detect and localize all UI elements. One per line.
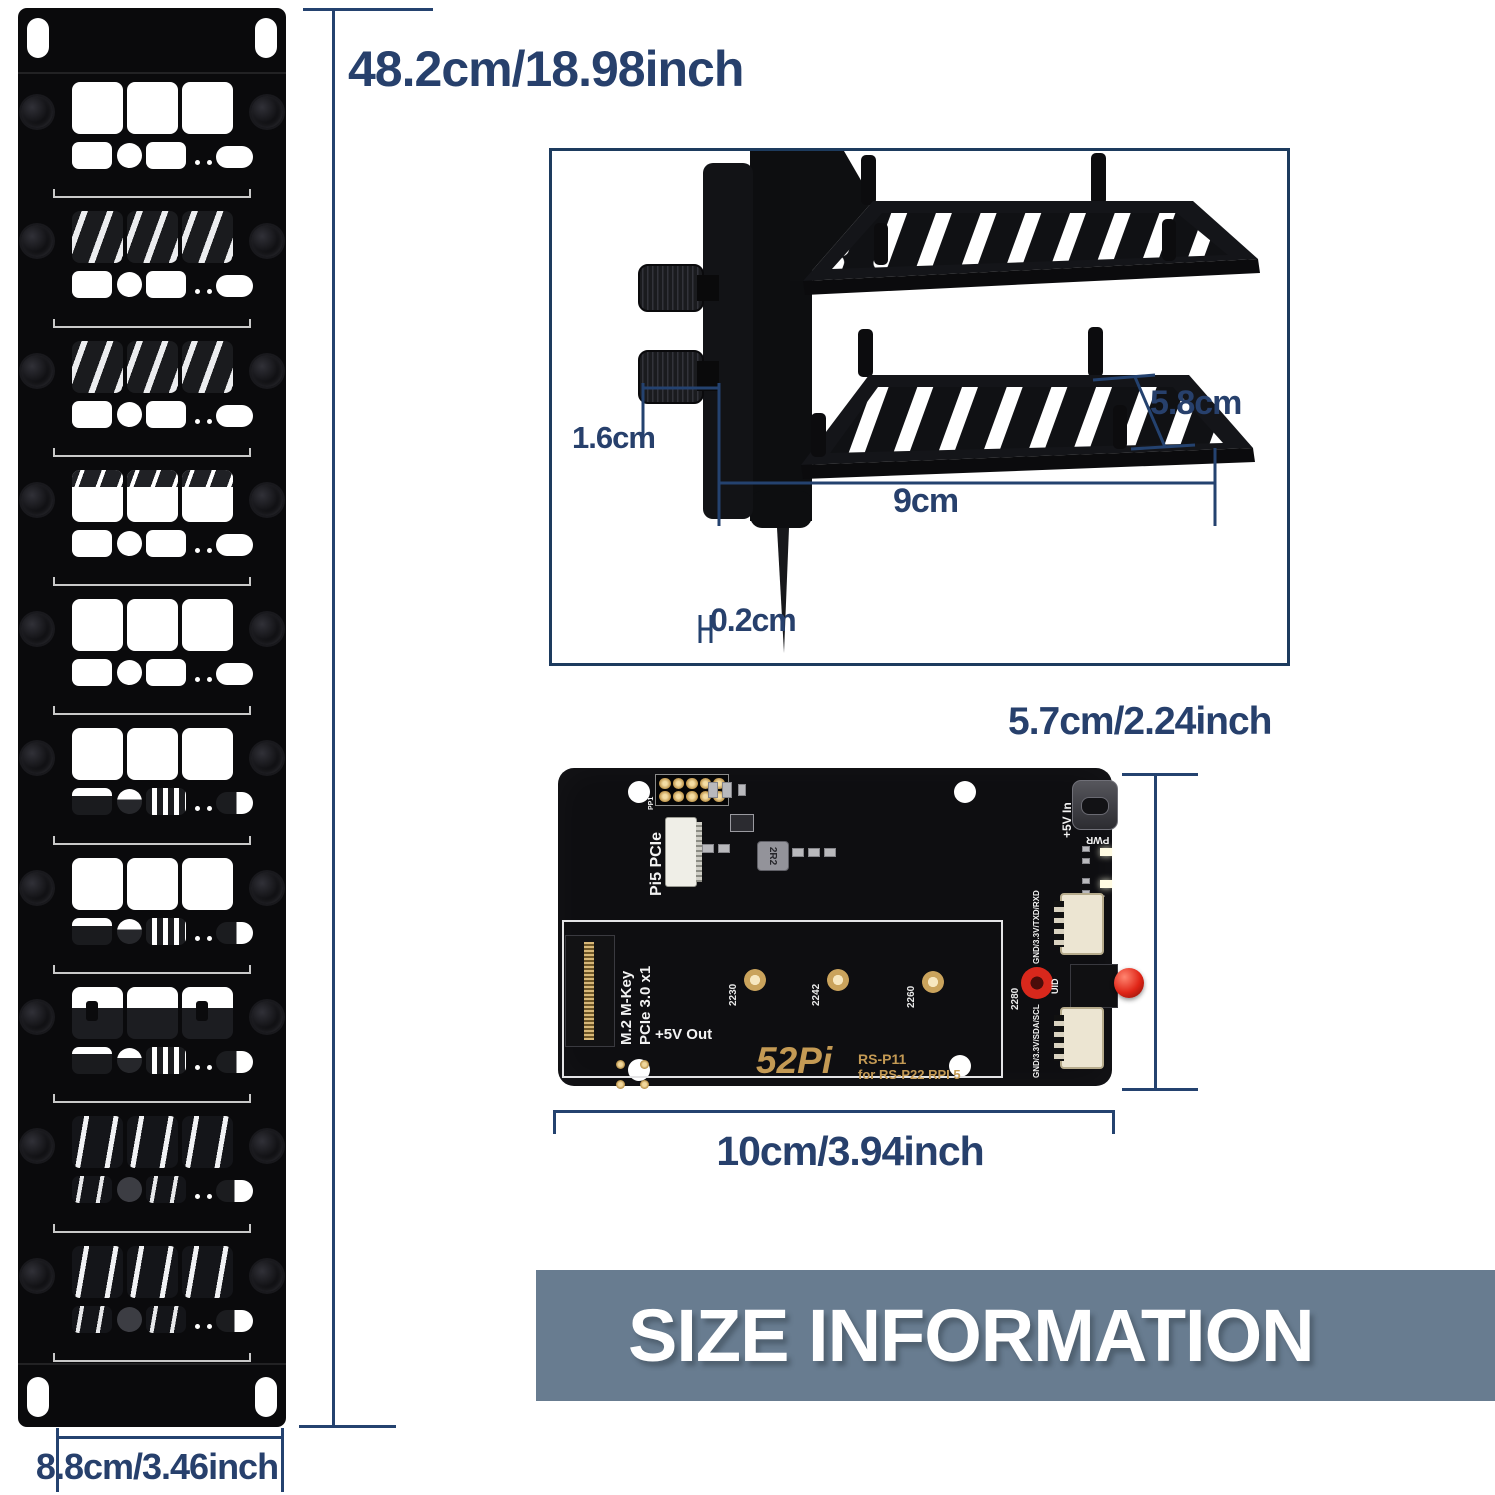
- smd-component: [722, 782, 732, 798]
- rack-screw-icon: [21, 1001, 53, 1033]
- bay-cutout-large: [127, 728, 178, 780]
- m2-slot-connector: [565, 935, 615, 1047]
- jst-connector-uart: [1060, 893, 1104, 955]
- model-label: RS-P11: [858, 1051, 906, 1067]
- bay-cutout-large: [182, 858, 233, 910]
- bay-cutout-dot: [195, 160, 200, 165]
- bay-cutout-pill: [216, 534, 253, 556]
- bay-cutout-pill: [216, 792, 253, 814]
- bay-cutout-pill: [216, 405, 253, 427]
- uid-label: UID: [1050, 979, 1060, 995]
- rack-screw-icon: [21, 742, 53, 774]
- rack-screw-icon: [21, 1130, 53, 1162]
- pcb-photo: PP1 Pi5 PCIe 2R2 M.2 M-Key PCIe 3.0 x1 2…: [558, 768, 1112, 1086]
- bay-cutout-small: [72, 918, 112, 945]
- bay-cutout-pill: [216, 146, 253, 168]
- bay-cutout-small: [146, 918, 186, 945]
- bay-cutout-large: [127, 211, 178, 263]
- solder-pad: [616, 1080, 625, 1089]
- bay-cutout-dot: [207, 1194, 212, 1199]
- bay-cutout-small: [72, 401, 112, 428]
- bay-cutout-small: [72, 1306, 112, 1333]
- pi5-pcie-label: Pi5 PCIe: [648, 832, 666, 896]
- bay-cutout-large: [72, 599, 123, 651]
- bay-cutout-large: [72, 858, 123, 910]
- bay-cutout-large: [72, 728, 123, 780]
- bay-cutout-dot: [207, 548, 212, 553]
- rack-screw-icon: [21, 96, 53, 128]
- bay-cutout-round: [117, 660, 142, 685]
- bay-cutout-large: [127, 1116, 178, 1168]
- pcb-hole: [628, 781, 650, 803]
- bay-cutout-small: [146, 659, 186, 686]
- rack-panel-photo: [18, 8, 286, 1427]
- standoff-label: 2242: [811, 984, 822, 1006]
- bay-cutout-large: [182, 1116, 233, 1168]
- smd-component: [824, 848, 836, 857]
- rack-screw-icon: [251, 484, 283, 516]
- bay-cutout-round: [117, 402, 142, 427]
- dim-cap: [1122, 1088, 1198, 1091]
- bay-cutout-dot: [207, 1065, 212, 1070]
- size-information-page: 48.2cm/18.98inch 8.8cm/3.46inch: [0, 0, 1495, 1495]
- rack-bay: [18, 201, 286, 330]
- bay-cutout-round: [117, 143, 142, 168]
- bracket-plate-foot: [750, 491, 812, 528]
- bay-cutout-large: [127, 470, 178, 522]
- m2-slot-label: M.2 M-Key PCIe 3.0 x1: [618, 966, 656, 1045]
- bay-cutout-pill: [216, 1180, 253, 1202]
- rack-screw-icon: [21, 1260, 53, 1292]
- bay-cutout-dot: [195, 677, 200, 682]
- bay-cutout-dot: [207, 936, 212, 941]
- bay-cutout-small: [146, 271, 186, 298]
- rack-bay: [18, 977, 286, 1106]
- rack-bay: [18, 72, 286, 201]
- smd-component: [1082, 846, 1090, 852]
- rack-screw-icon: [21, 355, 53, 387]
- dim-tick: [553, 1110, 556, 1134]
- smd-component: [708, 782, 718, 798]
- bay-cutout-small: [146, 401, 186, 428]
- smd-component: [738, 784, 746, 796]
- bay-cutout-dot: [195, 1194, 200, 1199]
- bay-seam: [53, 965, 251, 974]
- bay-cutout-large: [182, 728, 233, 780]
- pp1-label: PP1: [648, 797, 655, 810]
- rack-flange-top: [18, 8, 286, 74]
- rack-screw-icon: [21, 225, 53, 257]
- standoff-2242: [827, 969, 849, 991]
- bay-cutout-small: [146, 788, 186, 815]
- bay-cutout-small: [72, 530, 112, 557]
- bay-cutout-large: [127, 82, 178, 134]
- rack-screw-icon: [251, 872, 283, 904]
- bracket-width-label: 9cm: [893, 482, 958, 521]
- rack-screw-icon: [251, 742, 283, 774]
- bay-cutout-dot: [207, 419, 212, 424]
- smd-component: [1082, 878, 1090, 884]
- bay-cutout-small: [146, 1047, 186, 1074]
- red-power-button: [1114, 968, 1144, 998]
- bay-cutout-small: [146, 1176, 186, 1203]
- rack-screw-icon: [251, 613, 283, 645]
- rack-screw-icon: [21, 613, 53, 645]
- standoff-2280: [1021, 967, 1053, 999]
- standoff-2260: [922, 971, 944, 993]
- pwr-led: [1100, 848, 1112, 856]
- bracket-offset-label: 1.6cm: [572, 420, 655, 456]
- mount-hole: [255, 18, 277, 58]
- bay-cutout-round: [117, 919, 142, 944]
- panel-width-label: 8.8cm/3.46inch: [28, 1446, 286, 1488]
- power-in-label: +5V In: [1060, 802, 1074, 838]
- bay-cutout-large: [72, 82, 123, 134]
- bay-cutout-large: [182, 987, 233, 1039]
- bay-seam: [53, 319, 251, 328]
- bay-seam: [53, 1224, 251, 1233]
- bay-cutout-large: [72, 211, 123, 263]
- rack-bay: [18, 848, 286, 977]
- bay-cutout-pill: [216, 1051, 253, 1073]
- bay-cutout-large: [72, 1116, 123, 1168]
- bay-cutout-large: [182, 211, 233, 263]
- bay-cutout-large: [182, 82, 233, 134]
- bay-cutout-dot: [195, 1065, 200, 1070]
- solder-pad: [640, 1080, 649, 1089]
- bay-seam: [53, 1353, 251, 1362]
- bay-cutout-dot: [195, 806, 200, 811]
- bay-cutout-large: [127, 987, 178, 1039]
- standoff-label: 2260: [906, 986, 917, 1008]
- rack-flange-bottom: [18, 1363, 286, 1427]
- bay-cutout-dot: [195, 419, 200, 424]
- jst-connector-i2c: [1060, 1007, 1104, 1069]
- usb-c-port: [1072, 780, 1118, 830]
- uart-header-label: GND/3.3V/TXD/RXD: [1032, 890, 1041, 964]
- bay-seam: [53, 577, 251, 586]
- rack-screw-icon: [251, 1001, 283, 1033]
- power-out-label: +5V Out: [655, 1026, 712, 1043]
- button-switch-body: [1070, 964, 1118, 1008]
- rack-bay: [18, 1106, 286, 1235]
- 52pi-logo: 52Pi: [756, 1040, 832, 1082]
- smd-component: [702, 844, 714, 853]
- rack-bay: [18, 460, 286, 589]
- smd-component: [1082, 858, 1090, 864]
- standoff-2230: [744, 969, 766, 991]
- bay-cutout-small: [72, 271, 112, 298]
- rack-bay: [18, 718, 286, 847]
- bay-cutout-round: [117, 789, 142, 814]
- pwr-led-label: PWR: [1086, 834, 1109, 845]
- bay-cutout-round: [117, 1048, 142, 1073]
- ic-chip: [730, 814, 754, 832]
- bay-seam: [53, 836, 251, 845]
- bay-seam: [53, 1094, 251, 1103]
- bay-cutout-large: [127, 1246, 178, 1298]
- bay-cutout-large: [72, 987, 123, 1039]
- bay-cutout-large: [72, 470, 123, 522]
- rack-screw-icon: [251, 355, 283, 387]
- bay-cutout-round: [117, 1177, 142, 1202]
- dim-line-panel-height: [332, 8, 335, 1428]
- bay-seam: [53, 706, 251, 715]
- i2c-header-label: GND/3.3V/SDA/SCL: [1032, 1004, 1041, 1078]
- smd-component: [718, 844, 730, 853]
- bracket-depth-label: 5.8cm: [1150, 384, 1241, 423]
- bay-cutout-dot: [207, 1324, 212, 1329]
- standoff-label: 2230: [728, 984, 739, 1006]
- bay-cutout-small: [72, 659, 112, 686]
- bay-cutout-pill: [216, 663, 253, 685]
- pcb-height-label: 5.7cm/2.24inch: [1008, 700, 1272, 744]
- bay-cutout-dot: [207, 160, 212, 165]
- bay-cutout-dot: [195, 936, 200, 941]
- standoff-label: 2280: [1010, 988, 1021, 1010]
- bay-cutout-large: [182, 599, 233, 651]
- bay-seam: [53, 189, 251, 198]
- dim-tick: [1112, 1110, 1115, 1134]
- bay-cutout-small: [146, 530, 186, 557]
- bay-cutout-large: [182, 341, 233, 393]
- dim-line-pcb-width: [553, 1110, 1115, 1113]
- panel-height-label: 48.2cm/18.98inch: [348, 40, 743, 98]
- bay-cutout-large: [72, 341, 123, 393]
- smd-component: [808, 848, 820, 857]
- rack-screw-icon: [21, 872, 53, 904]
- bay-cutout-round: [117, 272, 142, 297]
- bay-cutout-small: [146, 142, 186, 169]
- bay-cutout-large: [127, 599, 178, 651]
- bay-cutout-large: [182, 470, 233, 522]
- pcb-hole: [954, 781, 976, 803]
- act-led: [1100, 880, 1112, 888]
- bay-cutout-pill: [216, 275, 253, 297]
- dim-line-pcb-height: [1154, 773, 1157, 1091]
- bay-cutout-large: [127, 858, 178, 910]
- ffc-connector: [665, 817, 697, 887]
- bay-cutout-dot: [195, 1324, 200, 1329]
- rack-screw-icon: [251, 1260, 283, 1292]
- bracket-thickness-label: 0.2cm: [710, 602, 796, 639]
- model-sub-label: for RS-P22 RPI 5: [858, 1067, 961, 1082]
- bay-cutout-small: [72, 142, 112, 169]
- rack-bay: [18, 589, 286, 718]
- banner-title: SIZE INFORMATION: [628, 1293, 1314, 1378]
- bay-cutout-dot: [207, 677, 212, 682]
- bay-cutout-small: [72, 788, 112, 815]
- bay-cutout-dot: [195, 548, 200, 553]
- rack-bay: [18, 1236, 286, 1365]
- bay-cutout-small: [72, 1047, 112, 1074]
- bay-cutout-large: [182, 1246, 233, 1298]
- bracket-flange: [703, 163, 753, 519]
- size-information-banner: SIZE INFORMATION: [536, 1270, 1495, 1401]
- bay-cutout-small: [72, 1176, 112, 1203]
- bracket-top-shelf: [803, 153, 1260, 295]
- bay-cutout-dot: [195, 289, 200, 294]
- bay-cutout-small: [146, 1306, 186, 1333]
- dim-cap: [1122, 773, 1198, 776]
- bay-cutout-dot: [207, 806, 212, 811]
- solder-pad: [640, 1060, 649, 1069]
- dim-cap-top: [303, 8, 433, 11]
- rack-bay: [18, 331, 286, 460]
- inductor-2r2: 2R2: [757, 841, 789, 871]
- dim-line-panel-width: [56, 1436, 284, 1439]
- mount-hole: [27, 18, 49, 58]
- bay-cutout-pill: [216, 922, 253, 944]
- rack-screw-icon: [251, 225, 283, 257]
- rack-screw-icon: [251, 1130, 283, 1162]
- bay-cutout-round: [117, 1307, 142, 1332]
- bay-cutout-dot: [207, 289, 212, 294]
- rack-bays: [18, 72, 286, 1365]
- bay-cutout-round: [117, 531, 142, 556]
- bay-seam: [53, 448, 251, 457]
- dim-cap-bottom: [299, 1425, 396, 1428]
- mount-hole: [27, 1377, 49, 1417]
- rack-screw-icon: [21, 484, 53, 516]
- smd-component: [792, 848, 804, 857]
- pcb-width-label: 10cm/3.94inch: [700, 1128, 1000, 1175]
- solder-pad: [616, 1060, 625, 1069]
- mount-hole: [255, 1377, 277, 1417]
- rack-screw-icon: [251, 96, 283, 128]
- bay-cutout-large: [72, 1246, 123, 1298]
- bay-cutout-large: [127, 341, 178, 393]
- bay-cutout-pill: [216, 1310, 253, 1332]
